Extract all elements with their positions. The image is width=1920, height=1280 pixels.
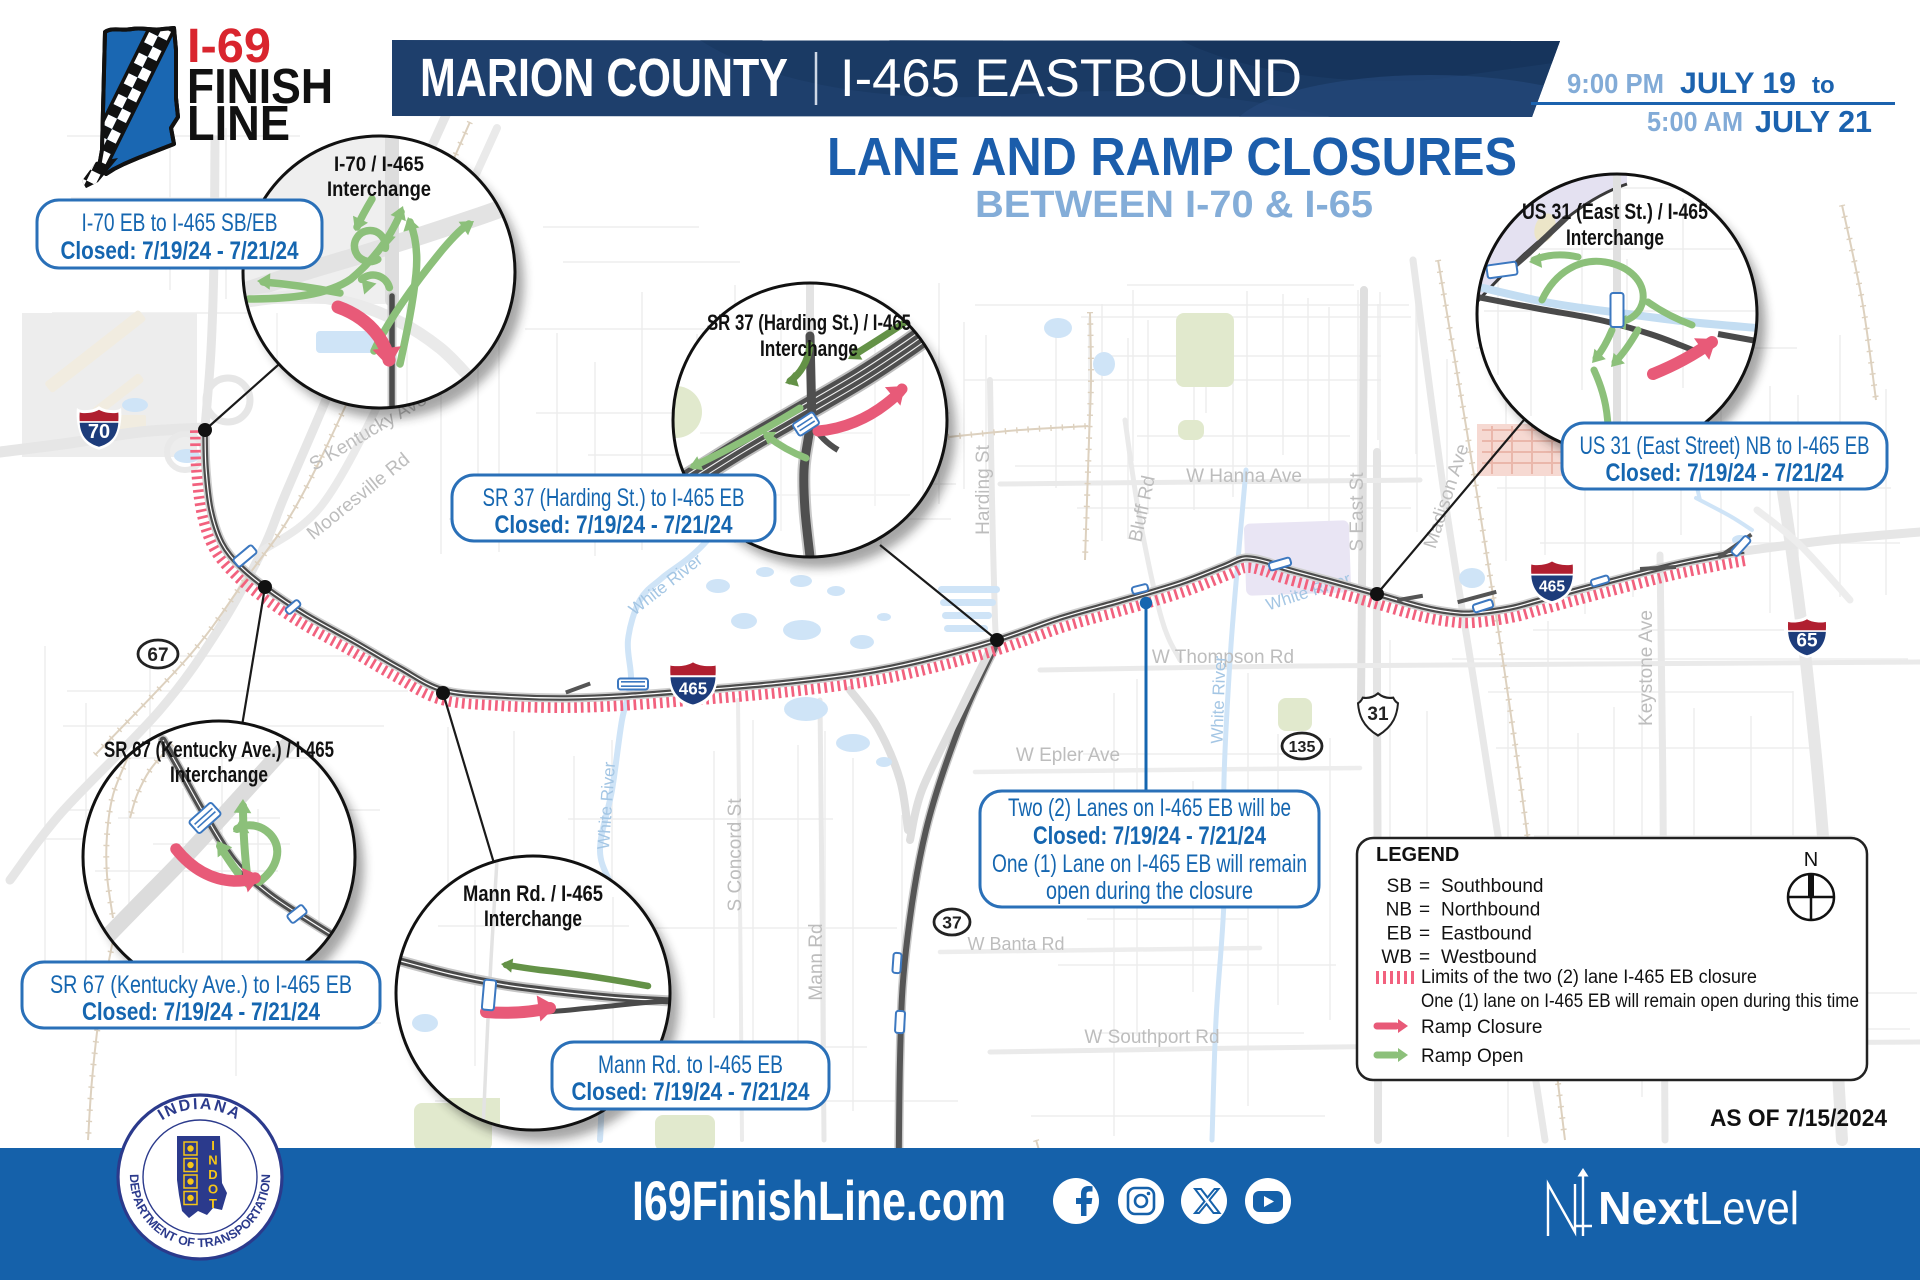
svg-text:W Epler Ave: W Epler Ave bbox=[1016, 745, 1120, 766]
svg-text:SB: SB bbox=[1387, 876, 1412, 897]
svg-text:LANE AND RAMP CLOSURES: LANE AND RAMP CLOSURES bbox=[827, 127, 1517, 187]
svg-text:67: 67 bbox=[147, 645, 168, 666]
svg-text:=: = bbox=[1419, 900, 1430, 921]
svg-text:US 31 (East Street) NB to I-46: US 31 (East Street) NB to I-465 EB bbox=[1580, 432, 1870, 460]
svg-text:SR 67 (Kentucky Ave.) / I-465: SR 67 (Kentucky Ave.) / I-465 bbox=[104, 737, 334, 762]
svg-text:W Hanna Ave: W Hanna Ave bbox=[1186, 466, 1302, 487]
svg-text:JULY 21: JULY 21 bbox=[1755, 104, 1872, 139]
svg-text:37: 37 bbox=[942, 912, 961, 932]
svg-text:Level: Level bbox=[1699, 1182, 1799, 1234]
svg-text:White River: White River bbox=[1207, 655, 1229, 744]
svg-text:Closed: 7/19/24 - 7/21/24: Closed: 7/19/24 - 7/21/24 bbox=[61, 237, 299, 265]
svg-text:I-70 EB to I-465 SB/EB: I-70 EB to I-465 SB/EB bbox=[82, 209, 278, 237]
svg-text:Northbound: Northbound bbox=[1441, 900, 1540, 921]
svg-text:One (1) lane on I-465 EB will: One (1) lane on I-465 EB will remain ope… bbox=[1421, 991, 1859, 1012]
svg-text:to: to bbox=[1812, 72, 1835, 99]
svg-text:Mann Rd. to I-465 EB: Mann Rd. to I-465 EB bbox=[598, 1051, 783, 1079]
svg-text:Interchange: Interchange bbox=[327, 177, 431, 201]
svg-text:Next: Next bbox=[1598, 1182, 1699, 1234]
svg-text:S Concord St: S Concord St bbox=[725, 798, 746, 912]
svg-text:I: I bbox=[211, 1138, 215, 1153]
svg-text:Interchange: Interchange bbox=[1566, 225, 1664, 250]
svg-text:O: O bbox=[208, 1182, 218, 1197]
svg-text:Harding St: Harding St bbox=[973, 444, 994, 534]
svg-text:65: 65 bbox=[1796, 631, 1818, 652]
svg-text:SR 37 (Harding St.) / I-465: SR 37 (Harding St.) / I-465 bbox=[707, 310, 911, 335]
svg-text:9:00 PM: 9:00 PM bbox=[1567, 68, 1664, 99]
svg-text:AS OF 7/15/2024: AS OF 7/15/2024 bbox=[1710, 1105, 1888, 1132]
svg-text:Closed: 7/19/24 - 7/21/24: Closed: 7/19/24 - 7/21/24 bbox=[82, 998, 320, 1026]
svg-text:465: 465 bbox=[1539, 579, 1565, 596]
svg-text:W Banta Rd: W Banta Rd bbox=[967, 934, 1064, 954]
svg-text:LEGEND: LEGEND bbox=[1376, 844, 1459, 866]
svg-text:Mann Rd. / I-465: Mann Rd. / I-465 bbox=[463, 881, 603, 906]
svg-text:Limits of the two (2) lane I-4: Limits of the two (2) lane I-465 EB clos… bbox=[1421, 967, 1757, 988]
svg-text:open during the closure: open during the closure bbox=[1046, 877, 1253, 905]
svg-text:I-70 / I-465: I-70 / I-465 bbox=[334, 152, 424, 176]
svg-text:LINE: LINE bbox=[187, 97, 290, 151]
svg-text:5:00 AM: 5:00 AM bbox=[1647, 106, 1743, 137]
svg-text:Eastbound: Eastbound bbox=[1441, 923, 1532, 944]
svg-text:WB: WB bbox=[1381, 947, 1412, 968]
svg-text:465: 465 bbox=[679, 679, 708, 699]
svg-text:135: 135 bbox=[1289, 739, 1316, 756]
svg-text:I-465 EASTBOUND: I-465 EASTBOUND bbox=[840, 49, 1302, 108]
svg-text:70: 70 bbox=[88, 421, 110, 443]
svg-text:Two (2) Lanes on I-465 EB will: Two (2) Lanes on I-465 EB will be bbox=[1008, 794, 1291, 822]
svg-text:Interchange: Interchange bbox=[170, 762, 268, 787]
svg-text:NB: NB bbox=[1386, 900, 1412, 921]
svg-text:MARION COUNTY: MARION COUNTY bbox=[420, 48, 788, 108]
svg-text:BETWEEN I-70 & I-65: BETWEEN I-70 & I-65 bbox=[975, 184, 1373, 226]
svg-text:=: = bbox=[1419, 947, 1430, 968]
svg-text:SR 37 (Harding St.) to I-465 E: SR 37 (Harding St.) to I-465 EB bbox=[483, 484, 745, 512]
svg-text:Closed: 7/19/24 - 7/21/24: Closed: 7/19/24 - 7/21/24 bbox=[572, 1078, 810, 1106]
svg-text:EB: EB bbox=[1387, 923, 1412, 944]
svg-text:JULY 19: JULY 19 bbox=[1680, 67, 1796, 100]
svg-text:Westbound: Westbound bbox=[1441, 947, 1537, 968]
svg-text:One (1) Lane on I-465 EB will: One (1) Lane on I-465 EB will remain bbox=[992, 850, 1307, 878]
svg-text:Closed: 7/19/24 - 7/21/24: Closed: 7/19/24 - 7/21/24 bbox=[495, 511, 733, 539]
svg-text:Ramp Open: Ramp Open bbox=[1421, 1046, 1523, 1067]
svg-text:31: 31 bbox=[1367, 704, 1389, 725]
svg-text:D: D bbox=[208, 1167, 217, 1182]
svg-text:Closed: 7/19/24 - 7/21/24: Closed: 7/19/24 - 7/21/24 bbox=[1033, 822, 1266, 850]
svg-text:Closed: 7/19/24 - 7/21/24: Closed: 7/19/24 - 7/21/24 bbox=[1606, 459, 1844, 487]
svg-text:US 31 (East St.) / I-465: US 31 (East St.) / I-465 bbox=[1522, 199, 1708, 224]
svg-text:W Southport Rd: W Southport Rd bbox=[1084, 1027, 1219, 1048]
svg-text:T: T bbox=[209, 1196, 217, 1211]
svg-text:Southbound: Southbound bbox=[1441, 876, 1544, 897]
svg-text:Keystone Ave: Keystone Ave bbox=[1636, 610, 1657, 726]
svg-text:Mann Rd: Mann Rd bbox=[806, 923, 827, 1000]
svg-text:S East St: S East St bbox=[1347, 472, 1368, 552]
svg-text:Ramp Closure: Ramp Closure bbox=[1421, 1017, 1542, 1038]
svg-text:I69FinishLine.com: I69FinishLine.com bbox=[632, 1169, 1006, 1232]
svg-text:N: N bbox=[208, 1153, 217, 1168]
svg-text:=: = bbox=[1419, 923, 1430, 944]
svg-text:SR 67 (Kentucky Ave.) to I-465: SR 67 (Kentucky Ave.) to I-465 EB bbox=[50, 971, 352, 999]
svg-text:=: = bbox=[1419, 876, 1430, 897]
svg-text:N: N bbox=[1804, 849, 1818, 871]
svg-text:Interchange: Interchange bbox=[760, 336, 858, 361]
svg-text:Interchange: Interchange bbox=[484, 906, 582, 931]
